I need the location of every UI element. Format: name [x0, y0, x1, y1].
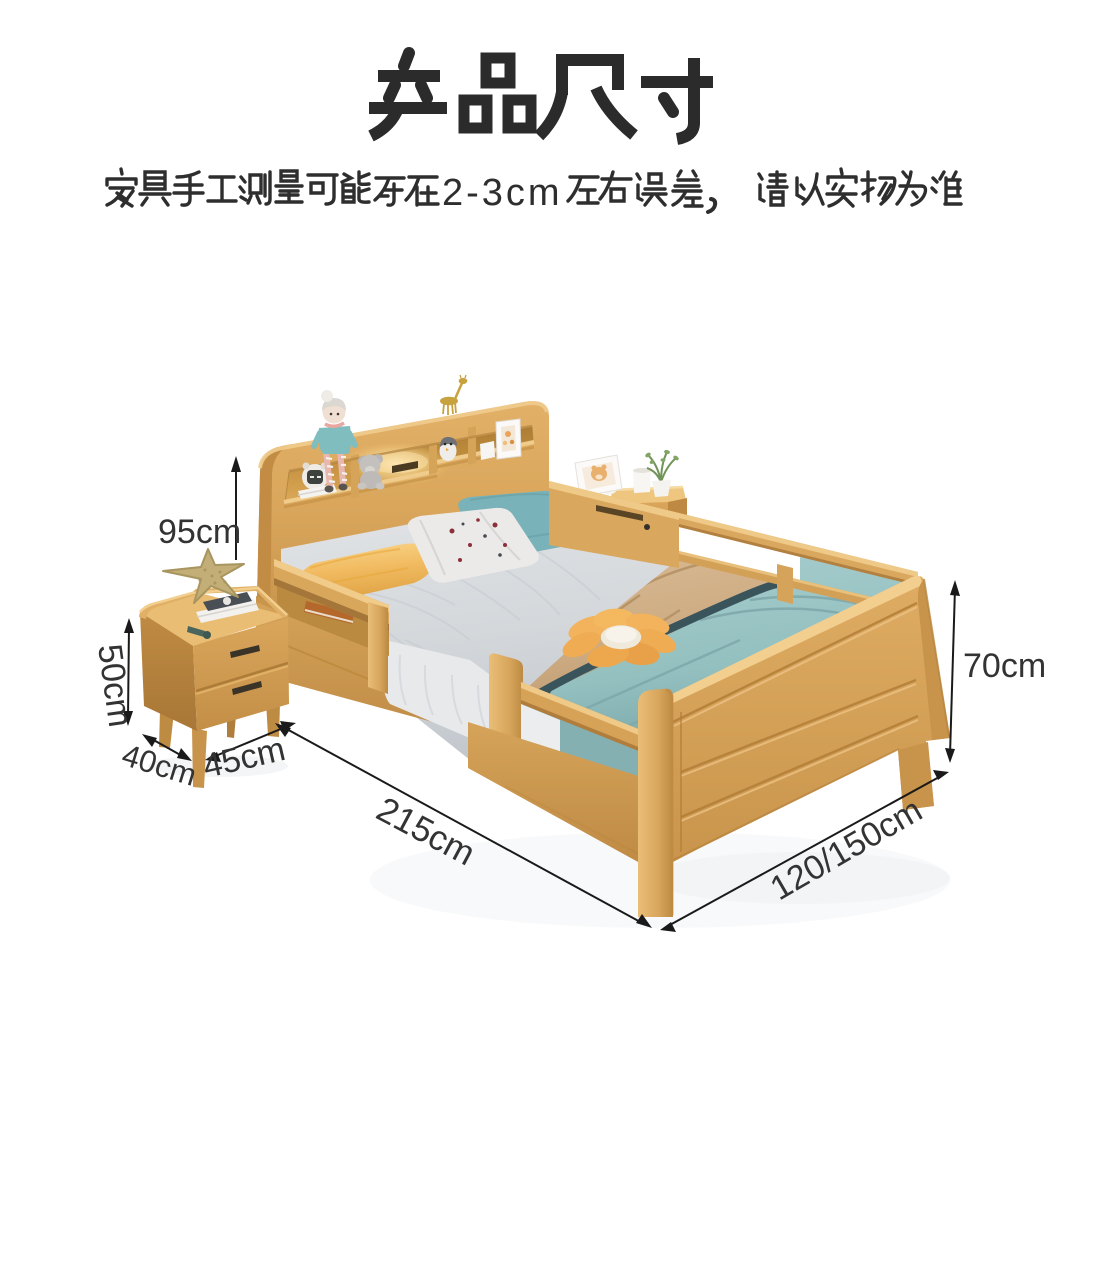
svg-text:2-3cm: 2-3cm	[442, 172, 563, 214]
svg-text:95cm: 95cm	[158, 513, 241, 551]
svg-text:70cm: 70cm	[963, 647, 1046, 685]
